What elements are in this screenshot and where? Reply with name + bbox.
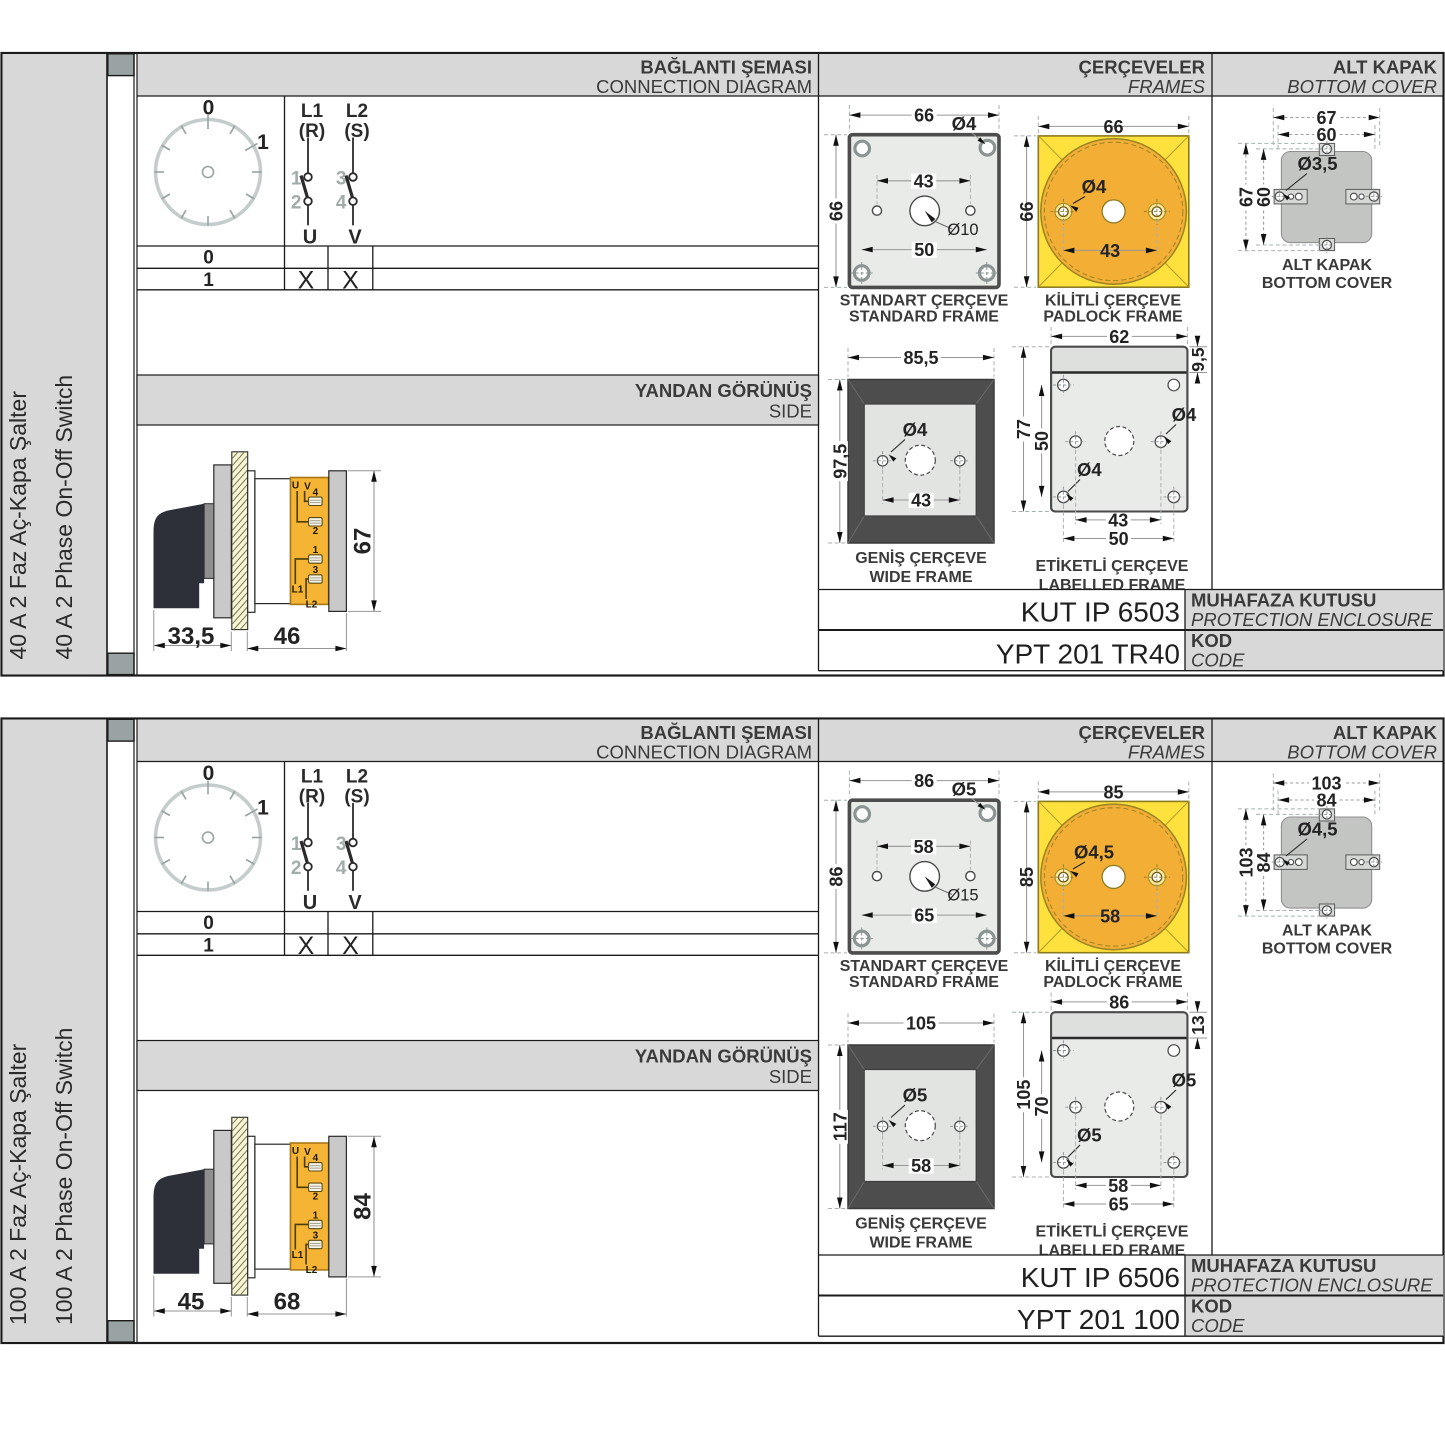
svg-text:L1: L1 <box>301 767 324 788</box>
svg-text:Ø5: Ø5 <box>1077 1125 1102 1146</box>
svg-text:STANDART ÇERÇEVE: STANDART ÇERÇEVE <box>840 958 1009 975</box>
svg-text:Ø4: Ø4 <box>1077 459 1102 480</box>
svg-text:V: V <box>304 482 311 493</box>
svg-text:43: 43 <box>1100 241 1120 261</box>
svg-text:2: 2 <box>291 858 302 879</box>
svg-text:(R): (R) <box>299 787 325 808</box>
svg-text:65: 65 <box>1109 1195 1129 1215</box>
svg-text:Ø4: Ø4 <box>1172 404 1197 425</box>
svg-text:100 A 2 Faz Aç-Kapa Şalter: 100 A 2 Faz Aç-Kapa Şalter <box>5 1043 31 1325</box>
svg-text:MUHAFAZA KUTUSU: MUHAFAZA KUTUSU <box>1191 1255 1376 1276</box>
svg-text:4: 4 <box>336 193 347 214</box>
svg-text:50: 50 <box>1109 529 1129 549</box>
svg-text:2: 2 <box>313 526 319 537</box>
svg-text:YANDAN GÖRÜNÜŞ: YANDAN GÖRÜNÜŞ <box>635 1046 812 1067</box>
svg-text:86: 86 <box>1109 992 1129 1012</box>
svg-text:58: 58 <box>1108 1176 1128 1196</box>
svg-text:60: 60 <box>1254 187 1274 207</box>
svg-text:0: 0 <box>203 913 214 934</box>
svg-text:68: 68 <box>274 1289 301 1316</box>
svg-text:U: U <box>303 227 317 249</box>
svg-text:40 A 2 Faz Aç-Kapa Şalter: 40 A 2 Faz Aç-Kapa Şalter <box>5 391 31 660</box>
svg-text:LABELLED FRAME: LABELLED FRAME <box>1039 1243 1186 1260</box>
svg-text:U: U <box>303 892 317 914</box>
svg-text:0: 0 <box>203 248 214 269</box>
svg-text:4: 4 <box>336 858 347 879</box>
svg-text:CONNECTION DIAGRAM: CONNECTION DIAGRAM <box>596 742 812 763</box>
svg-text:70: 70 <box>1032 1096 1052 1116</box>
svg-text:V: V <box>348 892 362 914</box>
svg-text:MUHAFAZA KUTUSU: MUHAFAZA KUTUSU <box>1191 590 1376 611</box>
svg-text:KİLİTLİ ÇERÇEVE: KİLİTLİ ÇERÇEVE <box>1045 292 1181 310</box>
svg-text:BAĞLANTI ŞEMASI: BAĞLANTI ŞEMASI <box>640 722 812 743</box>
svg-text:3: 3 <box>313 565 319 576</box>
svg-text:85: 85 <box>1017 867 1037 887</box>
svg-text:66: 66 <box>1104 117 1124 137</box>
svg-text:100 A 2 Phase On-Off Switch: 100 A 2 Phase On-Off Switch <box>51 1028 77 1325</box>
svg-text:117: 117 <box>830 1112 850 1141</box>
svg-text:ÇERÇEVELER: ÇERÇEVELER <box>1079 57 1205 78</box>
svg-text:PROTECTION ENCLOSURE: PROTECTION ENCLOSURE <box>1191 1275 1433 1296</box>
svg-text:66: 66 <box>827 201 847 221</box>
svg-text:84: 84 <box>1254 852 1274 872</box>
svg-text:SIDE: SIDE <box>769 401 812 422</box>
svg-text:Ø5: Ø5 <box>903 1085 928 1106</box>
svg-text:WIDE FRAME: WIDE FRAME <box>869 569 972 586</box>
svg-text:66: 66 <box>914 106 934 126</box>
svg-text:BAĞLANTI ŞEMASI: BAĞLANTI ŞEMASI <box>640 57 812 78</box>
svg-text:L2: L2 <box>306 1265 318 1276</box>
svg-text:9,5: 9,5 <box>1188 347 1208 372</box>
svg-text:1: 1 <box>203 936 214 957</box>
svg-text:0: 0 <box>203 97 215 120</box>
svg-text:58: 58 <box>1100 906 1120 926</box>
svg-text:Ø5: Ø5 <box>1172 1070 1197 1091</box>
svg-text:105: 105 <box>1014 1080 1034 1110</box>
svg-text:Ø5: Ø5 <box>952 779 977 800</box>
svg-text:FRAMES: FRAMES <box>1128 76 1206 97</box>
svg-text:58: 58 <box>914 837 934 857</box>
svg-text:2: 2 <box>313 1192 319 1203</box>
svg-text:L1: L1 <box>301 101 324 122</box>
svg-text:1: 1 <box>257 797 269 820</box>
svg-text:U: U <box>292 481 299 492</box>
svg-text:Ø4,5: Ø4,5 <box>1297 819 1337 840</box>
svg-text:KİLİTLİ ÇERÇEVE: KİLİTLİ ÇERÇEVE <box>1045 957 1181 975</box>
svg-text:77: 77 <box>1014 419 1034 439</box>
svg-text:L2: L2 <box>346 767 368 788</box>
svg-text:97,5: 97,5 <box>830 444 850 479</box>
svg-text:43: 43 <box>1108 510 1128 530</box>
svg-text:65: 65 <box>914 906 934 926</box>
svg-text:SIDE: SIDE <box>769 1066 812 1087</box>
svg-text:PADLOCK FRAME: PADLOCK FRAME <box>1043 309 1183 326</box>
svg-text:84: 84 <box>350 1193 377 1220</box>
svg-text:U: U <box>292 1146 299 1157</box>
svg-text:YANDAN GÖRÜNÜŞ: YANDAN GÖRÜNÜŞ <box>635 380 812 401</box>
svg-text:ETİKETLİ ÇERÇEVE: ETİKETLİ ÇERÇEVE <box>1036 1223 1189 1241</box>
svg-text:BOTTOM COVER: BOTTOM COVER <box>1262 941 1393 958</box>
svg-text:LABELLED FRAME: LABELLED FRAME <box>1039 577 1186 594</box>
svg-text:X: X <box>298 267 315 295</box>
svg-text:STANDARD FRAME: STANDARD FRAME <box>849 974 999 991</box>
svg-text:X: X <box>342 932 359 960</box>
svg-text:L2: L2 <box>306 600 318 611</box>
svg-text:CONNECTION DIAGRAM: CONNECTION DIAGRAM <box>596 76 812 97</box>
svg-text:GENİŞ ÇERÇEVE: GENİŞ ÇERÇEVE <box>855 1215 987 1233</box>
svg-text:45: 45 <box>178 1289 205 1316</box>
svg-text:1: 1 <box>291 834 302 855</box>
svg-text:40 A 2 Phase On-Off Switch: 40 A 2 Phase On-Off Switch <box>51 375 77 660</box>
svg-text:86: 86 <box>914 771 934 791</box>
svg-text:KUT IP 6503: KUT IP 6503 <box>1021 597 1180 628</box>
svg-text:ALT KAPAK: ALT KAPAK <box>1333 57 1438 78</box>
svg-text:KOD: KOD <box>1191 630 1232 651</box>
svg-text:STANDARD FRAME: STANDARD FRAME <box>849 309 999 326</box>
svg-text:L1: L1 <box>292 1250 304 1261</box>
svg-text:STANDART ÇERÇEVE: STANDART ÇERÇEVE <box>840 293 1009 310</box>
svg-text:43: 43 <box>914 171 934 191</box>
svg-text:50: 50 <box>914 240 934 260</box>
svg-text:PADLOCK FRAME: PADLOCK FRAME <box>1043 974 1183 991</box>
svg-text:Ø4: Ø4 <box>1082 176 1107 197</box>
svg-text:BOTTOM COVER: BOTTOM COVER <box>1287 742 1437 763</box>
svg-text:ALT KAPAK: ALT KAPAK <box>1282 923 1373 940</box>
svg-text:67: 67 <box>350 528 377 555</box>
svg-text:1: 1 <box>203 270 214 291</box>
svg-text:0: 0 <box>203 762 215 785</box>
svg-text:(R): (R) <box>299 121 325 142</box>
svg-text:Ø4: Ø4 <box>903 419 928 440</box>
svg-text:46: 46 <box>274 623 301 650</box>
svg-text:YPT 201 TR40: YPT 201 TR40 <box>996 639 1180 670</box>
svg-text:Ø10: Ø10 <box>947 221 978 239</box>
svg-text:1: 1 <box>257 131 269 154</box>
svg-text:ALT KAPAK: ALT KAPAK <box>1333 722 1438 743</box>
svg-text:85,5: 85,5 <box>903 348 938 368</box>
svg-text:3: 3 <box>336 834 347 855</box>
svg-text:85: 85 <box>1104 782 1124 802</box>
svg-text:4: 4 <box>313 487 319 498</box>
svg-text:GENİŞ ÇERÇEVE: GENİŞ ÇERÇEVE <box>855 549 987 567</box>
svg-text:CODE: CODE <box>1191 650 1245 671</box>
svg-text:PROTECTION ENCLOSURE: PROTECTION ENCLOSURE <box>1191 609 1433 630</box>
svg-text:1: 1 <box>291 169 302 190</box>
svg-text:V: V <box>304 1147 311 1158</box>
svg-text:13: 13 <box>1188 1015 1208 1035</box>
svg-text:3: 3 <box>336 169 347 190</box>
svg-text:33,5: 33,5 <box>168 623 215 650</box>
svg-text:X: X <box>342 267 359 295</box>
svg-text:X: X <box>298 932 315 960</box>
svg-text:L1: L1 <box>292 585 304 596</box>
svg-text:KOD: KOD <box>1191 1296 1232 1317</box>
svg-text:3: 3 <box>313 1231 319 1242</box>
svg-text:1: 1 <box>313 1211 319 1222</box>
svg-text:1: 1 <box>313 545 319 556</box>
svg-text:Ø4,5: Ø4,5 <box>1074 842 1114 863</box>
svg-text:WIDE FRAME: WIDE FRAME <box>869 1235 972 1252</box>
svg-text:2: 2 <box>291 193 302 214</box>
svg-text:ÇERÇEVELER: ÇERÇEVELER <box>1079 722 1205 743</box>
svg-text:FRAMES: FRAMES <box>1128 742 1206 763</box>
svg-text:66: 66 <box>1017 202 1037 222</box>
svg-text:V: V <box>348 227 362 249</box>
svg-text:58: 58 <box>911 1156 931 1176</box>
svg-text:62: 62 <box>1109 327 1129 347</box>
svg-text:(S): (S) <box>344 121 369 142</box>
svg-text:ETİKETLİ ÇERÇEVE: ETİKETLİ ÇERÇEVE <box>1036 557 1189 575</box>
svg-text:105: 105 <box>906 1014 936 1034</box>
svg-text:BOTTOM COVER: BOTTOM COVER <box>1262 275 1393 292</box>
svg-text:Ø3,5: Ø3,5 <box>1297 153 1337 174</box>
svg-text:4: 4 <box>313 1153 319 1164</box>
svg-text:Ø4: Ø4 <box>952 113 977 134</box>
svg-text:ALT KAPAK: ALT KAPAK <box>1282 257 1373 274</box>
svg-text:86: 86 <box>827 867 847 887</box>
svg-text:YPT 201 100: YPT 201 100 <box>1017 1304 1180 1335</box>
svg-text:43: 43 <box>911 491 931 511</box>
svg-text:(S): (S) <box>344 787 369 808</box>
svg-text:BOTTOM COVER: BOTTOM COVER <box>1287 76 1437 97</box>
svg-text:KUT IP 6506: KUT IP 6506 <box>1021 1262 1180 1293</box>
svg-text:L2: L2 <box>346 101 368 122</box>
svg-text:Ø15: Ø15 <box>947 887 978 905</box>
svg-text:50: 50 <box>1032 431 1052 451</box>
svg-text:CODE: CODE <box>1191 1315 1245 1336</box>
